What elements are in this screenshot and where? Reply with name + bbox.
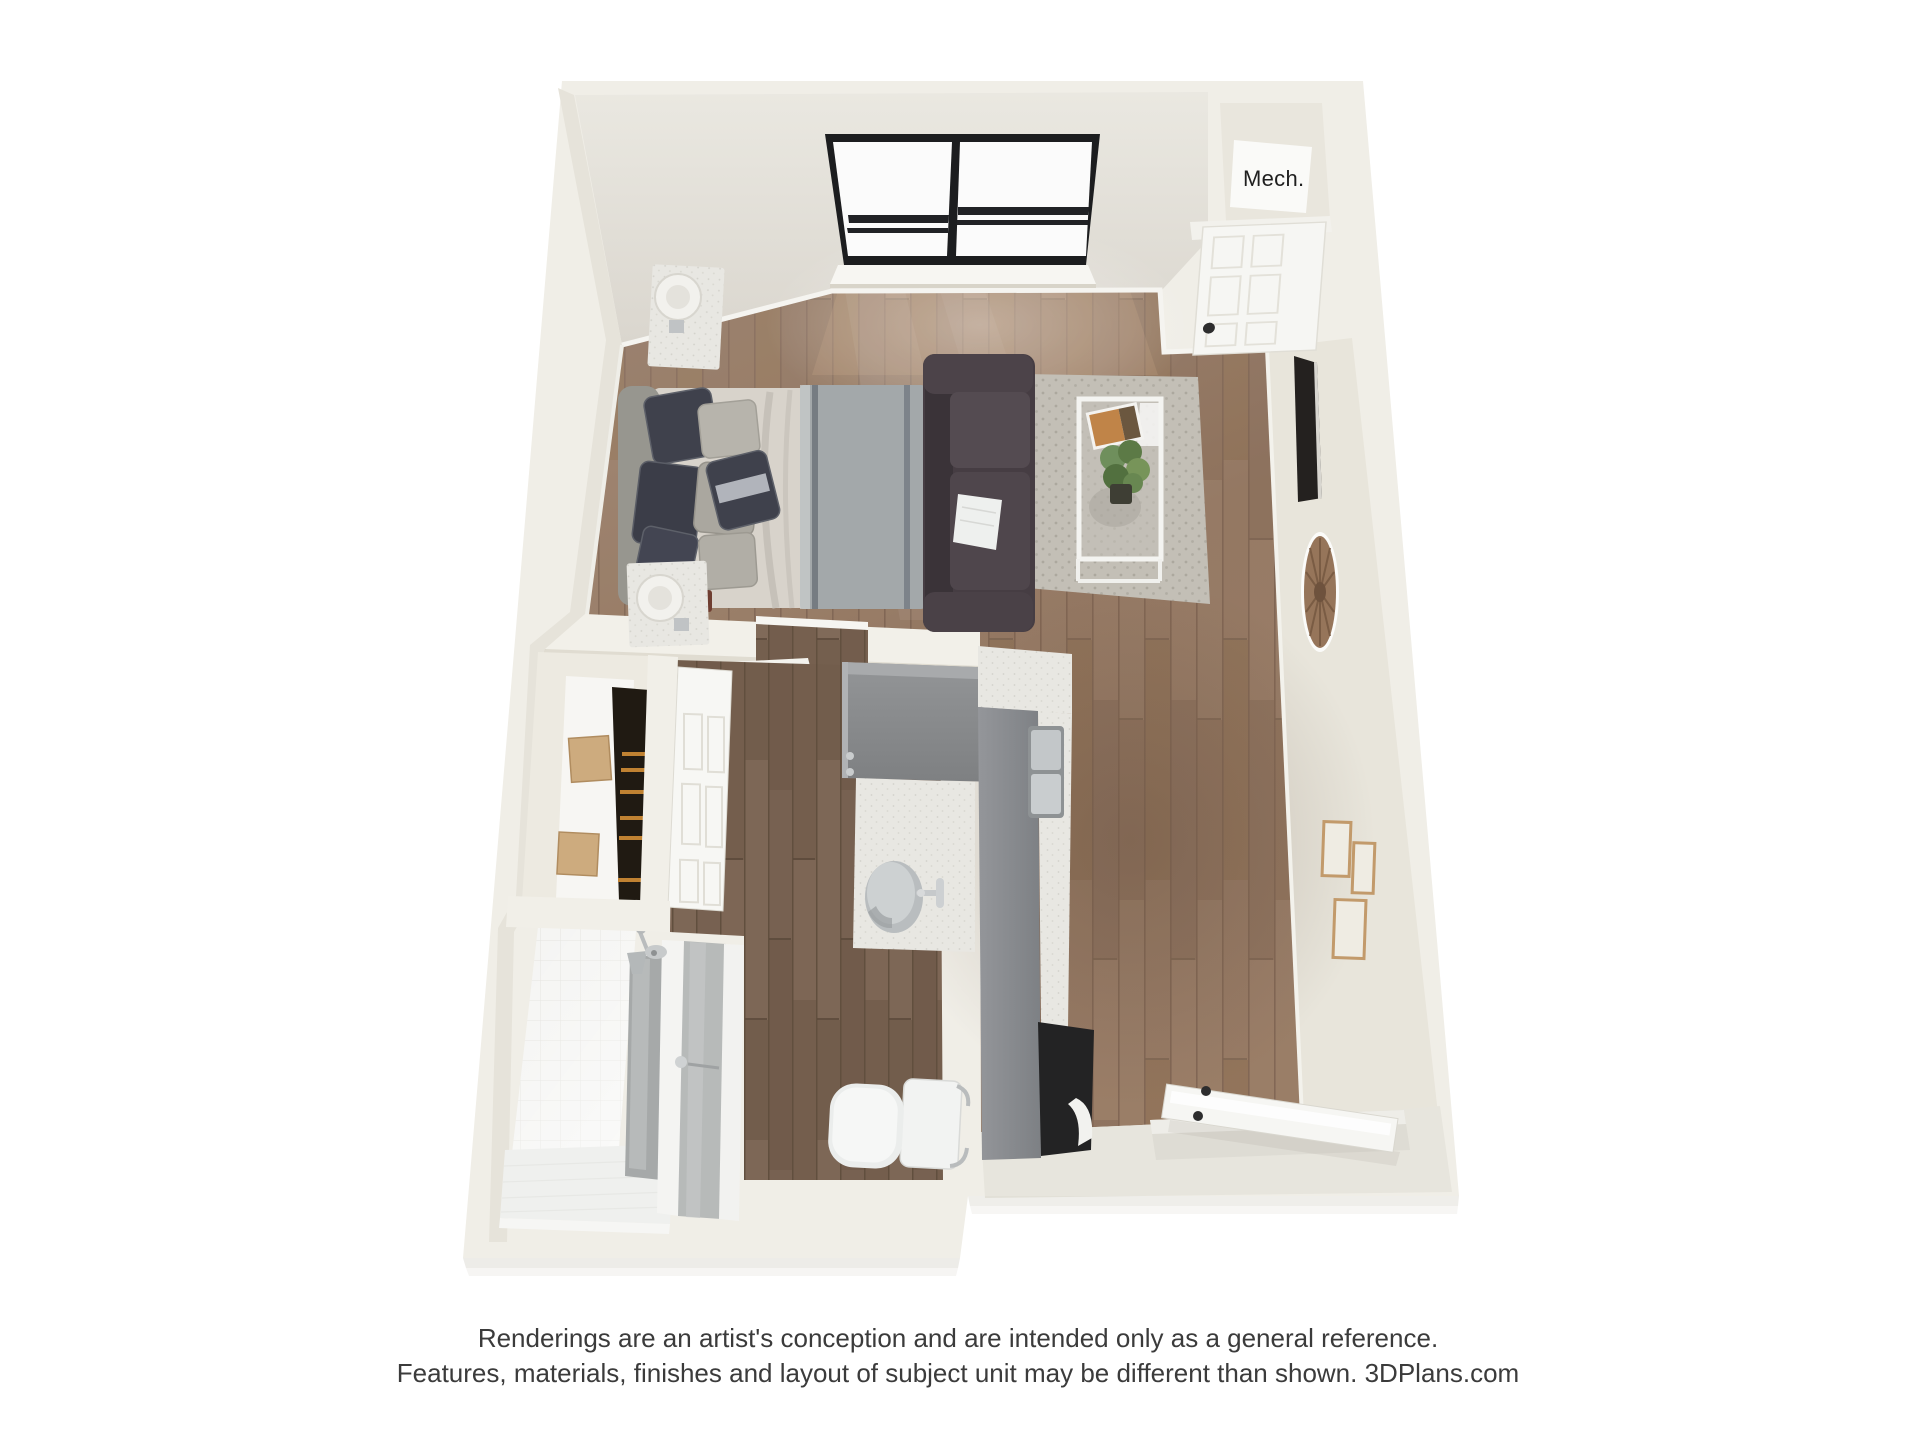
svg-text:Renderings are an artist's con: Renderings are an artist's conception an…	[478, 1323, 1438, 1353]
svg-text:Mech.: Mech.	[1243, 166, 1304, 191]
svg-text:Features, materials, finishes: Features, materials, finishes and layout…	[397, 1358, 1519, 1388]
